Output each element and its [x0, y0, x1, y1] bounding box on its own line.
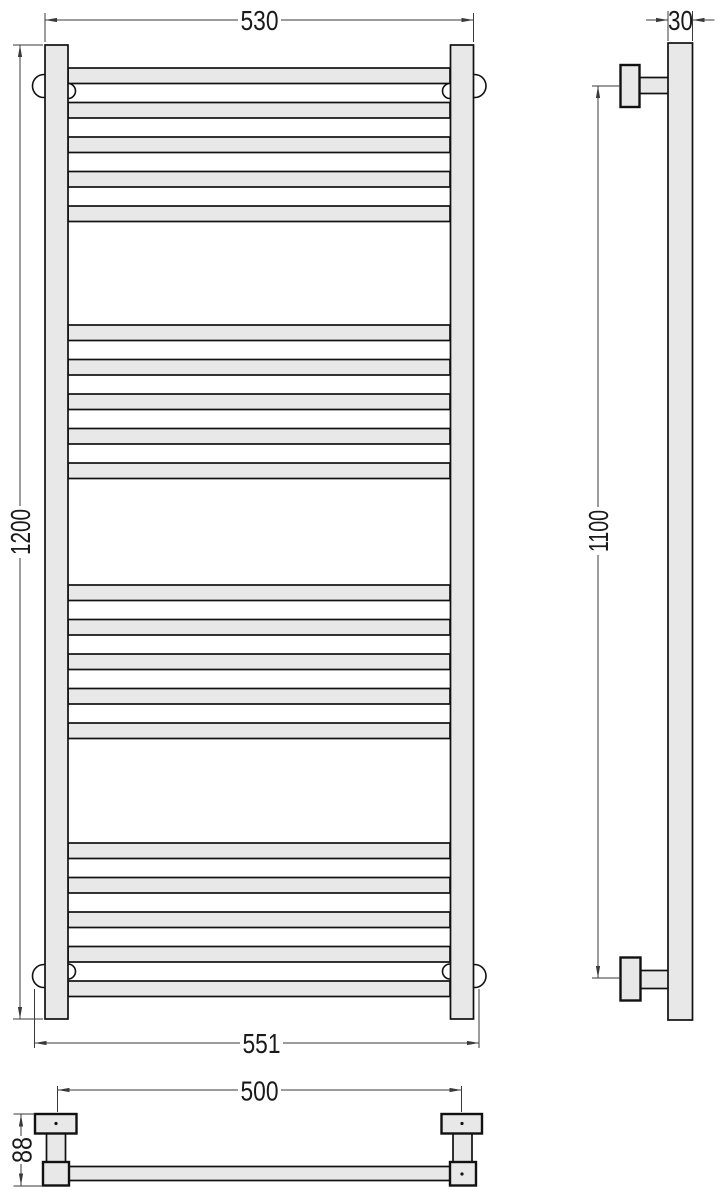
arrowhead-left [45, 18, 57, 22]
right-rail [451, 45, 474, 1019]
rung [68, 463, 450, 479]
dim-label-1200: 1200 [5, 509, 36, 555]
technical-drawing: 530 1200 551 30 [0, 0, 727, 1200]
rung [68, 394, 450, 410]
dim-label-551: 551 [243, 1028, 281, 1059]
arrowhead-bottom [596, 966, 600, 978]
left-rail [45, 45, 68, 1019]
rung [68, 912, 450, 928]
arrowhead-left [35, 1041, 47, 1045]
arrowhead-right [450, 1088, 462, 1092]
dim-label-88: 88 [7, 1137, 38, 1163]
rung [68, 137, 450, 153]
arrowhead-top [18, 45, 22, 57]
side-rail-profile [668, 43, 693, 1020]
screw-hole-dot [54, 1122, 57, 1125]
arrowhead-left [58, 1088, 70, 1092]
rung [68, 620, 450, 636]
plan-view [35, 1114, 482, 1186]
arrowhead-right [467, 1041, 479, 1045]
rail-profile-plan-left [43, 1162, 69, 1186]
rung [68, 878, 450, 894]
wall-plate-top [621, 65, 640, 107]
bracket-arm-top [640, 78, 669, 94]
arrowhead-right [693, 18, 705, 22]
arrowhead-top [596, 86, 600, 98]
rung [68, 103, 450, 119]
arrowhead-top [19, 1115, 23, 1127]
rung [68, 689, 450, 705]
rung [68, 947, 450, 963]
top-rung-plan [69, 1167, 450, 1181]
screw-hole-dot [460, 1172, 463, 1175]
rung [68, 429, 450, 445]
dimension-551: 551 [35, 989, 480, 1059]
drawing-canvas: 530 1200 551 30 [0, 0, 727, 1200]
rung [68, 172, 450, 188]
dimension-30: 30 [646, 5, 715, 41]
rung [68, 360, 450, 376]
rung [68, 981, 450, 997]
arrowhead-bottom [19, 1174, 23, 1186]
dimension-1200: 1200 [5, 45, 43, 1019]
bracket-stem-plan-left [47, 1134, 66, 1164]
rung [68, 843, 450, 859]
dim-label-500: 500 [241, 1076, 279, 1107]
front-view [33, 45, 487, 1019]
dimension-1100: 1100 [583, 86, 621, 978]
rung [68, 206, 450, 222]
bracket-arm-bottom [641, 971, 669, 989]
arrowhead-bottom [18, 1007, 22, 1019]
wall-plate-bottom [621, 958, 641, 1001]
rung [68, 325, 450, 341]
dim-label-30: 30 [668, 5, 693, 36]
rung [68, 654, 450, 670]
rung [68, 68, 450, 84]
dimension-500: 500 [58, 1076, 462, 1113]
screw-hole-dot [460, 1122, 463, 1125]
rung-group [68, 68, 450, 997]
rung [68, 723, 450, 739]
dimension-530: 530 [45, 5, 474, 42]
dim-label-530: 530 [241, 5, 279, 36]
bracket-stem-plan-right [453, 1134, 472, 1164]
rung [68, 585, 450, 601]
arrowhead-right [462, 18, 474, 22]
arrowhead-left [656, 18, 668, 22]
dim-label-1100: 1100 [583, 510, 614, 552]
side-view [621, 43, 693, 1020]
